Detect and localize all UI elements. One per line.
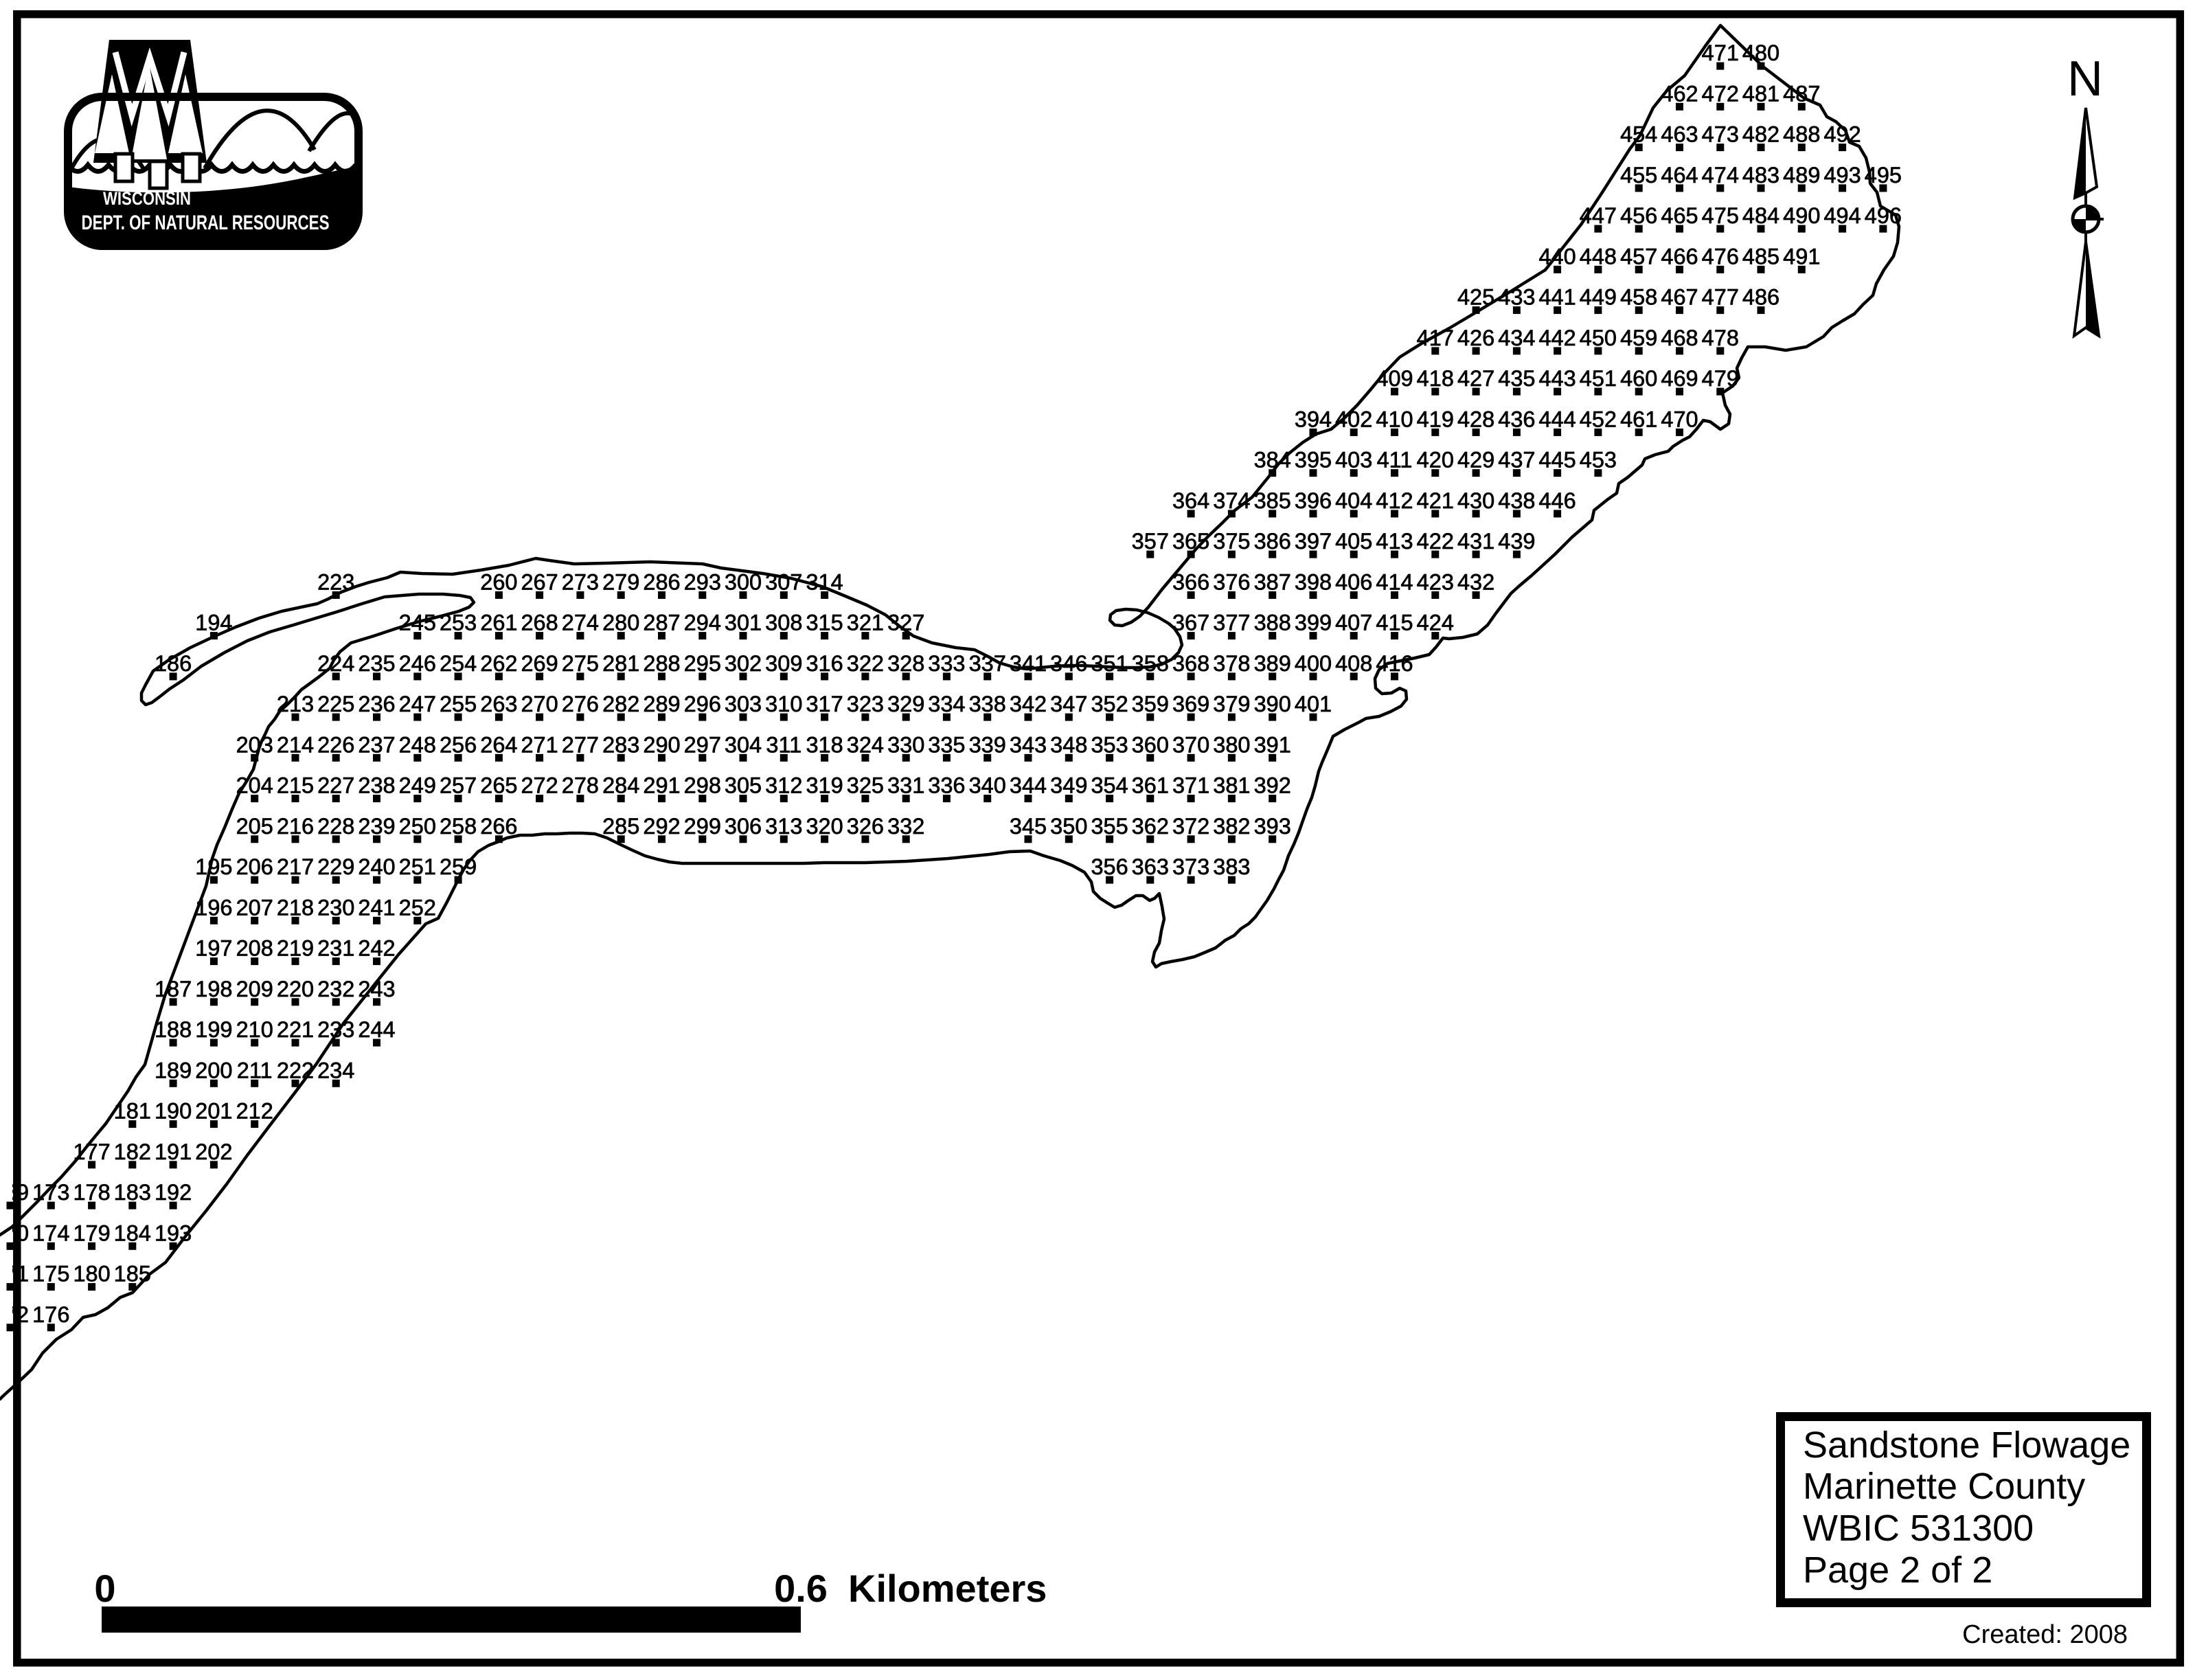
svg-text:412: 412: [1376, 488, 1413, 513]
svg-text:369: 369: [1172, 692, 1209, 716]
svg-text:372: 372: [1172, 814, 1209, 839]
svg-text:396: 396: [1295, 488, 1332, 513]
svg-text:485: 485: [1742, 244, 1779, 269]
svg-text:487: 487: [1783, 81, 1820, 106]
svg-text:200: 200: [195, 1058, 232, 1082]
svg-text:370: 370: [1172, 732, 1209, 757]
svg-text:358: 358: [1132, 651, 1169, 676]
svg-text:340: 340: [969, 773, 1006, 798]
svg-text:263: 263: [480, 692, 517, 716]
svg-text:182: 182: [114, 1139, 151, 1164]
svg-text:270: 270: [521, 692, 558, 716]
svg-text:365: 365: [1172, 529, 1209, 554]
svg-text:384: 384: [1254, 448, 1291, 473]
svg-text:240: 240: [358, 854, 395, 879]
svg-text:306: 306: [725, 814, 762, 839]
svg-text:183: 183: [114, 1180, 151, 1205]
svg-text:174: 174: [32, 1221, 69, 1245]
svg-text:275: 275: [562, 651, 599, 676]
svg-text:390: 390: [1254, 692, 1291, 716]
svg-text:495: 495: [1865, 163, 1902, 188]
svg-text:490: 490: [1783, 203, 1820, 228]
svg-text:407: 407: [1335, 611, 1372, 635]
svg-text:224: 224: [317, 651, 354, 676]
svg-text:245: 245: [399, 611, 436, 635]
svg-text:Kilometers: Kilometers: [848, 1567, 1047, 1610]
svg-text:310: 310: [765, 692, 802, 716]
svg-text:417: 417: [1417, 326, 1454, 350]
svg-text:285: 285: [602, 814, 639, 839]
svg-text:286: 286: [643, 569, 680, 594]
svg-text:442: 442: [1538, 326, 1576, 350]
svg-text:432: 432: [1457, 569, 1494, 594]
svg-text:397: 397: [1295, 529, 1332, 554]
svg-text:Marinette County: Marinette County: [1803, 1466, 2085, 1507]
svg-text:439: 439: [1498, 529, 1535, 554]
svg-text:272: 272: [521, 773, 558, 798]
svg-text:244: 244: [358, 1017, 395, 1042]
svg-text:400: 400: [1295, 651, 1332, 676]
svg-text:312: 312: [765, 773, 802, 798]
svg-text:216: 216: [277, 814, 314, 839]
svg-text:255: 255: [440, 692, 477, 716]
svg-text:239: 239: [358, 814, 395, 839]
svg-text:416: 416: [1376, 651, 1413, 676]
svg-text:330: 330: [887, 732, 924, 757]
svg-text:436: 436: [1498, 407, 1535, 431]
svg-text:410: 410: [1376, 407, 1413, 431]
svg-text:180: 180: [73, 1262, 110, 1286]
svg-text:368: 368: [1172, 651, 1209, 676]
svg-text:230: 230: [317, 895, 354, 920]
svg-text:434: 434: [1498, 326, 1535, 350]
svg-text:254: 254: [440, 651, 477, 676]
svg-text:360: 360: [1132, 732, 1169, 757]
svg-text:437: 437: [1498, 448, 1535, 473]
svg-text:228: 228: [317, 814, 354, 839]
svg-text:344: 344: [1010, 773, 1047, 798]
svg-text:385: 385: [1254, 488, 1291, 513]
svg-text:393: 393: [1254, 814, 1291, 839]
svg-text:477: 477: [1702, 285, 1739, 310]
svg-text:203: 203: [236, 732, 273, 757]
svg-text:448: 448: [1580, 244, 1617, 269]
svg-text:336: 336: [928, 773, 965, 798]
svg-text:243: 243: [358, 977, 395, 1001]
svg-text:435: 435: [1498, 366, 1535, 391]
svg-text:188: 188: [155, 1017, 192, 1042]
svg-text:190: 190: [155, 1099, 192, 1124]
svg-text:281: 281: [602, 651, 639, 676]
svg-text:421: 421: [1417, 488, 1454, 513]
svg-text:225: 225: [317, 692, 354, 716]
svg-text:301: 301: [725, 611, 762, 635]
svg-text:201: 201: [195, 1099, 232, 1124]
svg-text:455: 455: [1620, 163, 1657, 188]
svg-text:373: 373: [1172, 854, 1209, 879]
svg-text:193: 193: [155, 1221, 192, 1245]
svg-text:271: 271: [521, 732, 558, 757]
svg-text:349: 349: [1050, 773, 1087, 798]
svg-text:374: 374: [1213, 488, 1250, 513]
svg-text:444: 444: [1538, 407, 1576, 431]
svg-text:232: 232: [317, 977, 354, 1001]
svg-text:464: 464: [1661, 163, 1698, 188]
svg-text:345: 345: [1010, 814, 1047, 839]
svg-text:409: 409: [1376, 366, 1413, 391]
svg-text:321: 321: [847, 611, 884, 635]
svg-text:404: 404: [1335, 488, 1372, 513]
svg-text:347: 347: [1050, 692, 1087, 716]
svg-text:449: 449: [1580, 285, 1617, 310]
svg-text:484: 484: [1742, 203, 1779, 228]
svg-text:303: 303: [725, 692, 762, 716]
svg-text:278: 278: [562, 773, 599, 798]
svg-text:378: 378: [1213, 651, 1250, 676]
svg-text:235: 235: [358, 651, 395, 676]
svg-text:352: 352: [1091, 692, 1128, 716]
svg-text:453: 453: [1580, 448, 1617, 473]
svg-text:257: 257: [440, 773, 477, 798]
svg-text:251: 251: [399, 854, 436, 879]
svg-text:467: 467: [1661, 285, 1698, 310]
svg-text:324: 324: [847, 732, 884, 757]
svg-text:468: 468: [1661, 326, 1698, 350]
svg-text:391: 391: [1254, 732, 1291, 757]
svg-text:472: 472: [1702, 81, 1739, 106]
svg-text:249: 249: [399, 773, 436, 798]
svg-text:419: 419: [1417, 407, 1454, 431]
svg-text:282: 282: [602, 692, 639, 716]
svg-text:246: 246: [399, 651, 436, 676]
svg-text:325: 325: [847, 773, 884, 798]
svg-text:241: 241: [358, 895, 395, 920]
svg-text:300: 300: [725, 569, 762, 594]
svg-text:207: 207: [236, 895, 273, 920]
svg-text:462: 462: [1661, 81, 1698, 106]
svg-text:195: 195: [195, 854, 232, 879]
svg-text:214: 214: [277, 732, 314, 757]
svg-text:425: 425: [1457, 285, 1494, 310]
svg-text:237: 237: [358, 732, 395, 757]
svg-text:322: 322: [847, 651, 884, 676]
svg-text:447: 447: [1580, 203, 1617, 228]
svg-text:294: 294: [684, 611, 721, 635]
svg-text:496: 496: [1865, 203, 1902, 228]
svg-text:279: 279: [602, 569, 639, 594]
svg-text:376: 376: [1213, 569, 1250, 594]
svg-text:179: 179: [73, 1221, 110, 1245]
svg-text:175: 175: [32, 1262, 69, 1286]
svg-text:457: 457: [1620, 244, 1657, 269]
svg-text:0.6: 0.6: [774, 1567, 828, 1610]
svg-text:226: 226: [317, 732, 354, 757]
svg-text:311: 311: [766, 732, 801, 757]
svg-text:223: 223: [317, 569, 354, 594]
svg-text:379: 379: [1213, 692, 1250, 716]
svg-text:361: 361: [1132, 773, 1169, 798]
svg-text:351: 351: [1091, 651, 1128, 676]
svg-text:297: 297: [684, 732, 721, 757]
svg-text:215: 215: [277, 773, 314, 798]
svg-text:366: 366: [1172, 569, 1209, 594]
svg-text:466: 466: [1661, 244, 1698, 269]
svg-text:494: 494: [1823, 203, 1861, 228]
svg-text:227: 227: [317, 773, 354, 798]
svg-text:219: 219: [277, 936, 314, 961]
svg-text:265: 265: [480, 773, 517, 798]
svg-text:264: 264: [480, 732, 517, 757]
svg-text:178: 178: [73, 1180, 110, 1205]
svg-text:204: 204: [236, 773, 273, 798]
svg-text:387: 387: [1254, 569, 1291, 594]
svg-text:189: 189: [155, 1058, 192, 1082]
svg-text:427: 427: [1457, 366, 1494, 391]
svg-text:187: 187: [155, 977, 192, 1001]
svg-text:415: 415: [1376, 611, 1413, 635]
svg-text:Created: 2008: Created: 2008: [1962, 1620, 2128, 1649]
svg-text:454: 454: [1620, 122, 1657, 147]
svg-text:489: 489: [1783, 163, 1820, 188]
svg-text:486: 486: [1742, 285, 1779, 310]
svg-text:341: 341: [1010, 651, 1047, 676]
svg-text:441: 441: [1538, 285, 1576, 310]
svg-text:192: 192: [155, 1180, 192, 1205]
svg-text:423: 423: [1417, 569, 1454, 594]
svg-text:252: 252: [399, 895, 436, 920]
svg-text:388: 388: [1254, 611, 1291, 635]
svg-text:313: 313: [765, 814, 802, 839]
svg-text:284: 284: [602, 773, 639, 798]
svg-text:197: 197: [195, 936, 232, 961]
svg-text:418: 418: [1417, 366, 1454, 391]
svg-text:465: 465: [1661, 203, 1698, 228]
svg-text:323: 323: [847, 692, 884, 716]
svg-text:371: 371: [1172, 773, 1209, 798]
svg-text:478: 478: [1702, 326, 1739, 350]
svg-text:253: 253: [440, 611, 477, 635]
svg-text:287: 287: [643, 611, 680, 635]
svg-text:460: 460: [1620, 366, 1657, 391]
svg-text:429: 429: [1457, 448, 1494, 473]
svg-text:431: 431: [1457, 529, 1494, 554]
svg-text:231: 231: [317, 936, 354, 961]
svg-text:186: 186: [155, 651, 192, 676]
svg-text:229: 229: [317, 854, 354, 879]
svg-text:211: 211: [237, 1058, 273, 1082]
svg-text:176: 176: [32, 1302, 69, 1327]
svg-text:184: 184: [114, 1221, 151, 1245]
svg-text:440: 440: [1538, 244, 1576, 269]
svg-text:481: 481: [1742, 81, 1779, 106]
svg-text:198: 198: [195, 977, 232, 1001]
svg-text:339: 339: [969, 732, 1006, 757]
svg-text:209: 209: [236, 977, 273, 1001]
svg-text:331: 331: [887, 773, 924, 798]
svg-text:327: 327: [887, 611, 924, 635]
svg-text:367: 367: [1172, 611, 1209, 635]
svg-text:236: 236: [358, 692, 395, 716]
svg-text:319: 319: [806, 773, 843, 798]
svg-text:217: 217: [277, 854, 314, 879]
svg-text:317: 317: [806, 692, 843, 716]
svg-text:316: 316: [806, 651, 843, 676]
svg-text:354: 354: [1091, 773, 1128, 798]
svg-text:307: 307: [765, 569, 802, 594]
svg-text:482: 482: [1742, 122, 1779, 147]
svg-text:406: 406: [1335, 569, 1372, 594]
svg-text:177: 177: [73, 1139, 110, 1164]
svg-text:475: 475: [1702, 203, 1739, 228]
svg-text:426: 426: [1457, 326, 1494, 350]
svg-text:492: 492: [1823, 122, 1861, 147]
svg-text:381: 381: [1213, 773, 1250, 798]
svg-text:280: 280: [602, 611, 639, 635]
svg-text:315: 315: [806, 611, 843, 635]
svg-text:309: 309: [765, 651, 802, 676]
svg-text:350: 350: [1050, 814, 1087, 839]
svg-text:305: 305: [725, 773, 762, 798]
svg-text:402: 402: [1335, 407, 1372, 431]
svg-text:289: 289: [643, 692, 680, 716]
svg-text:392: 392: [1254, 773, 1291, 798]
svg-text:283: 283: [602, 732, 639, 757]
svg-text:346: 346: [1050, 651, 1087, 676]
svg-text:262: 262: [480, 651, 517, 676]
svg-text:220: 220: [277, 977, 314, 1001]
svg-text:268: 268: [521, 611, 558, 635]
svg-text:288: 288: [643, 651, 680, 676]
svg-text:218: 218: [277, 895, 314, 920]
svg-text:308: 308: [765, 611, 802, 635]
svg-text:443: 443: [1538, 366, 1576, 391]
svg-text:375: 375: [1213, 529, 1250, 554]
svg-text:433: 433: [1498, 285, 1535, 310]
svg-text:459: 459: [1620, 326, 1657, 350]
svg-text:363: 363: [1132, 854, 1169, 879]
svg-text:267: 267: [521, 569, 558, 594]
svg-text:247: 247: [399, 692, 436, 716]
svg-text:205: 205: [236, 814, 273, 839]
svg-text:413: 413: [1376, 529, 1413, 554]
svg-text:196: 196: [195, 895, 232, 920]
svg-text:326: 326: [847, 814, 884, 839]
svg-text:234: 234: [317, 1058, 354, 1082]
svg-text:334: 334: [928, 692, 965, 716]
svg-text:483: 483: [1742, 163, 1779, 188]
svg-text:403: 403: [1335, 448, 1372, 473]
svg-text:386: 386: [1254, 529, 1291, 554]
svg-text:259: 259: [440, 854, 477, 879]
svg-text:261: 261: [480, 611, 517, 635]
svg-text:250: 250: [399, 814, 436, 839]
svg-text:333: 333: [928, 651, 965, 676]
svg-text:411: 411: [1377, 448, 1413, 473]
svg-text:260: 260: [480, 569, 517, 594]
svg-text:389: 389: [1254, 651, 1291, 676]
svg-text:233: 233: [317, 1017, 354, 1042]
svg-text:329: 329: [887, 692, 924, 716]
svg-text:274: 274: [562, 611, 599, 635]
svg-text:314: 314: [806, 569, 843, 594]
svg-text:DEPT. OF NATURAL RESOURCES: DEPT. OF NATURAL RESOURCES: [82, 212, 330, 234]
svg-text:474: 474: [1702, 163, 1739, 188]
svg-text:343: 343: [1010, 732, 1047, 757]
svg-text:WBIC 531300: WBIC 531300: [1803, 1508, 2034, 1549]
svg-text:269: 269: [521, 651, 558, 676]
svg-text:342: 342: [1010, 692, 1047, 716]
svg-text:258: 258: [440, 814, 477, 839]
svg-text:302: 302: [725, 651, 762, 676]
svg-text:405: 405: [1335, 529, 1372, 554]
svg-text:382: 382: [1213, 814, 1250, 839]
svg-text:181: 181: [114, 1099, 151, 1124]
svg-text:293: 293: [684, 569, 721, 594]
svg-text:430: 430: [1457, 488, 1494, 513]
svg-text:328: 328: [887, 651, 924, 676]
svg-text:191: 191: [155, 1139, 192, 1164]
svg-text:WISCONSIN: WISCONSIN: [103, 188, 191, 209]
svg-text:276: 276: [562, 692, 599, 716]
svg-text:438: 438: [1498, 488, 1535, 513]
svg-text:0: 0: [94, 1567, 115, 1610]
svg-text:337: 337: [969, 651, 1006, 676]
svg-text:185: 185: [114, 1262, 151, 1286]
svg-text:273: 273: [562, 569, 599, 594]
svg-text:470: 470: [1661, 407, 1698, 431]
svg-text:452: 452: [1580, 407, 1617, 431]
svg-text:304: 304: [725, 732, 762, 757]
svg-text:362: 362: [1132, 814, 1169, 839]
svg-text:476: 476: [1702, 244, 1739, 269]
svg-text:Sandstone Flowage: Sandstone Flowage: [1803, 1424, 2130, 1466]
svg-text:295: 295: [684, 651, 721, 676]
svg-text:212: 212: [236, 1099, 273, 1124]
svg-text:395: 395: [1295, 448, 1332, 473]
svg-text:N: N: [2067, 52, 2103, 106]
svg-text:194: 194: [195, 611, 232, 635]
svg-text:428: 428: [1457, 407, 1494, 431]
svg-text:206: 206: [236, 854, 273, 879]
svg-text:242: 242: [358, 936, 395, 961]
svg-text:357: 357: [1132, 529, 1169, 554]
svg-text:332: 332: [887, 814, 924, 839]
svg-text:222: 222: [277, 1058, 314, 1082]
svg-text:479: 479: [1702, 366, 1739, 391]
svg-text:348: 348: [1050, 732, 1087, 757]
svg-text:456: 456: [1620, 203, 1657, 228]
svg-text:290: 290: [643, 732, 680, 757]
svg-text:353: 353: [1091, 732, 1128, 757]
svg-text:380: 380: [1213, 732, 1250, 757]
svg-text:493: 493: [1823, 163, 1861, 188]
svg-text:422: 422: [1417, 529, 1454, 554]
svg-text:398: 398: [1295, 569, 1332, 594]
svg-text:202: 202: [195, 1139, 232, 1164]
svg-text:480: 480: [1742, 41, 1779, 65]
svg-text:469: 469: [1661, 366, 1698, 391]
svg-text:408: 408: [1335, 651, 1372, 676]
svg-text:473: 473: [1702, 122, 1739, 147]
svg-text:488: 488: [1783, 122, 1820, 147]
svg-text:338: 338: [969, 692, 1006, 716]
svg-text:451: 451: [1580, 366, 1617, 391]
svg-text:318: 318: [806, 732, 843, 757]
svg-text:277: 277: [562, 732, 599, 757]
svg-text:458: 458: [1620, 285, 1657, 310]
svg-text:399: 399: [1295, 611, 1332, 635]
svg-text:296: 296: [684, 692, 721, 716]
